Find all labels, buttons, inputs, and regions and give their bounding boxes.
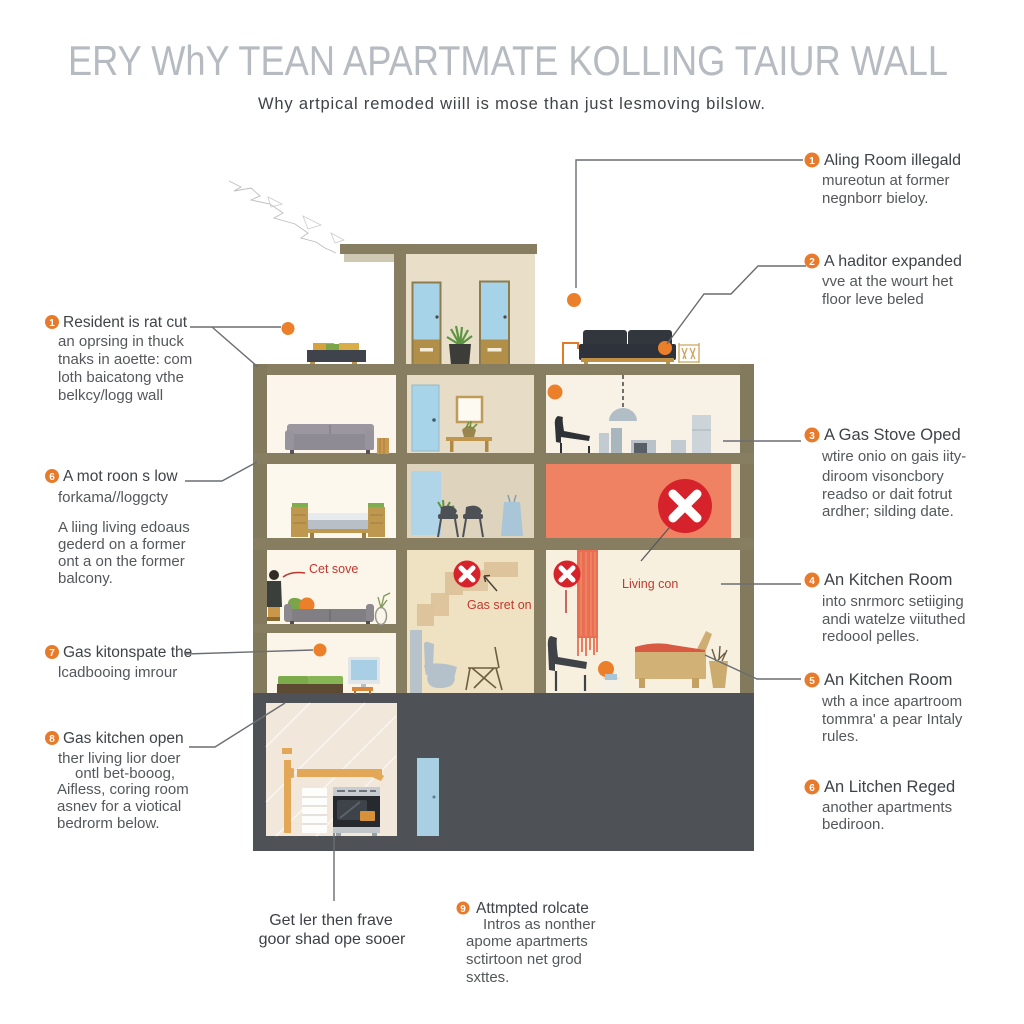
svg-text:A Gas Stove Oped: A Gas Stove Oped [824,426,961,444]
svg-text:ardher; silding date.: ardher; silding date. [822,503,954,520]
svg-text:An Kitchen Room: An Kitchen Room [824,671,952,689]
svg-text:apome apartmerts: apome apartmerts [466,933,588,950]
svg-text:into snrmorc setiiging: into snrmorc setiiging [822,593,964,610]
svg-text:1: 1 [809,156,815,167]
svg-text:2: 2 [809,257,815,268]
svg-text:Gas kitchen open: Gas kitchen open [63,730,184,747]
svg-text:6: 6 [809,783,815,794]
svg-text:Resident is rat cut: Resident is rat cut [63,314,188,331]
svg-text:A haditor expanded: A haditor expanded [824,253,962,270]
svg-text:bediroon.: bediroon. [822,816,885,833]
svg-text:sctirtoon net grod: sctirtoon net grod [466,951,582,968]
svg-text:6: 6 [49,472,55,483]
svg-text:9: 9 [460,904,466,915]
svg-text:1: 1 [49,318,55,329]
svg-text:A mot roon s low: A mot roon s low [63,468,178,485]
svg-text:Cet sove: Cet sove [309,562,358,576]
svg-text:another apartments: another apartments [822,799,952,816]
svg-text:an oprsing in thuck: an oprsing in thuck [58,333,184,350]
svg-text:Get ler then frave: Get ler then frave [269,912,393,929]
svg-text:bedrorm below.: bedrorm below. [57,815,160,832]
svg-text:redoool pelles.: redoool pelles. [822,628,920,645]
svg-text:An Kitchen Room: An Kitchen Room [824,571,952,589]
svg-text:An Litchen Reged: An Litchen Reged [824,778,955,796]
svg-text:asnev for a viotical: asnev for a viotical [57,798,181,815]
svg-text:mureotun at former: mureotun at former [822,172,950,189]
svg-text:Gas kitonspate the: Gas kitonspate the [63,644,192,661]
svg-text:Intros as nonther: Intros as nonther [483,916,596,933]
svg-text:Aifless, coring room: Aifless, coring room [57,781,189,798]
svg-text:5: 5 [809,676,815,687]
svg-text:ontl bet-booog,: ontl bet-booog, [75,765,175,782]
svg-text:Living con: Living con [622,577,678,591]
svg-text:lcadbooing imrour: lcadbooing imrour [58,664,177,681]
svg-text:goor shad ope sooer: goor shad ope sooer [259,931,406,948]
svg-text:Gas sret on: Gas sret on [467,598,532,612]
svg-text:gederd on a former: gederd on a former [58,536,186,553]
svg-text:wtire onio on gais iity-: wtire onio on gais iity- [821,448,966,465]
svg-text:ont a on the former: ont a on the former [58,553,185,570]
svg-text:wth a ince apartroom: wth a ince apartroom [821,693,962,710]
svg-text:Why artpical remoded wiill is: Why artpical remoded wiill is mose than … [258,95,765,113]
svg-text:ERY WhY TEAN APARTMATE KOLLING: ERY WhY TEAN APARTMATE KOLLING TAIUR WAL… [68,37,948,84]
svg-text:3: 3 [809,431,815,442]
svg-text:vve at the wourt het: vve at the wourt het [822,273,954,290]
svg-text:sxttes.: sxttes. [466,969,509,986]
svg-text:andi watelze viituthed: andi watelze viituthed [822,611,965,628]
svg-text:floor leve beled: floor leve beled [822,291,924,308]
svg-text:tommra' a pear Intaly: tommra' a pear Intaly [822,711,963,728]
svg-text:8: 8 [49,734,55,745]
svg-text:tnaks in aoette: com: tnaks in aoette: com [58,351,192,368]
svg-text:7: 7 [49,648,55,659]
svg-text:balcony.: balcony. [58,570,113,587]
svg-text:readso or dait fotrut: readso or dait fotrut [822,486,953,503]
svg-text:Aling Room illegald: Aling Room illegald [824,152,961,169]
svg-text:belkcy/logg wall: belkcy/logg wall [58,387,163,404]
svg-text:Attmpted rolcate: Attmpted rolcate [476,900,589,917]
svg-text:forkama//loggcty: forkama//loggcty [58,489,169,506]
svg-text:rules.: rules. [822,728,859,745]
svg-text:A liing living edoaus: A liing living edoaus [58,519,190,536]
svg-text:4: 4 [809,576,815,587]
svg-text:negnborr bieloy.: negnborr bieloy. [822,190,928,207]
svg-text:diroom visoncbory: diroom visoncbory [822,468,944,485]
svg-text:loth baicatong vthe: loth baicatong vthe [58,369,184,386]
